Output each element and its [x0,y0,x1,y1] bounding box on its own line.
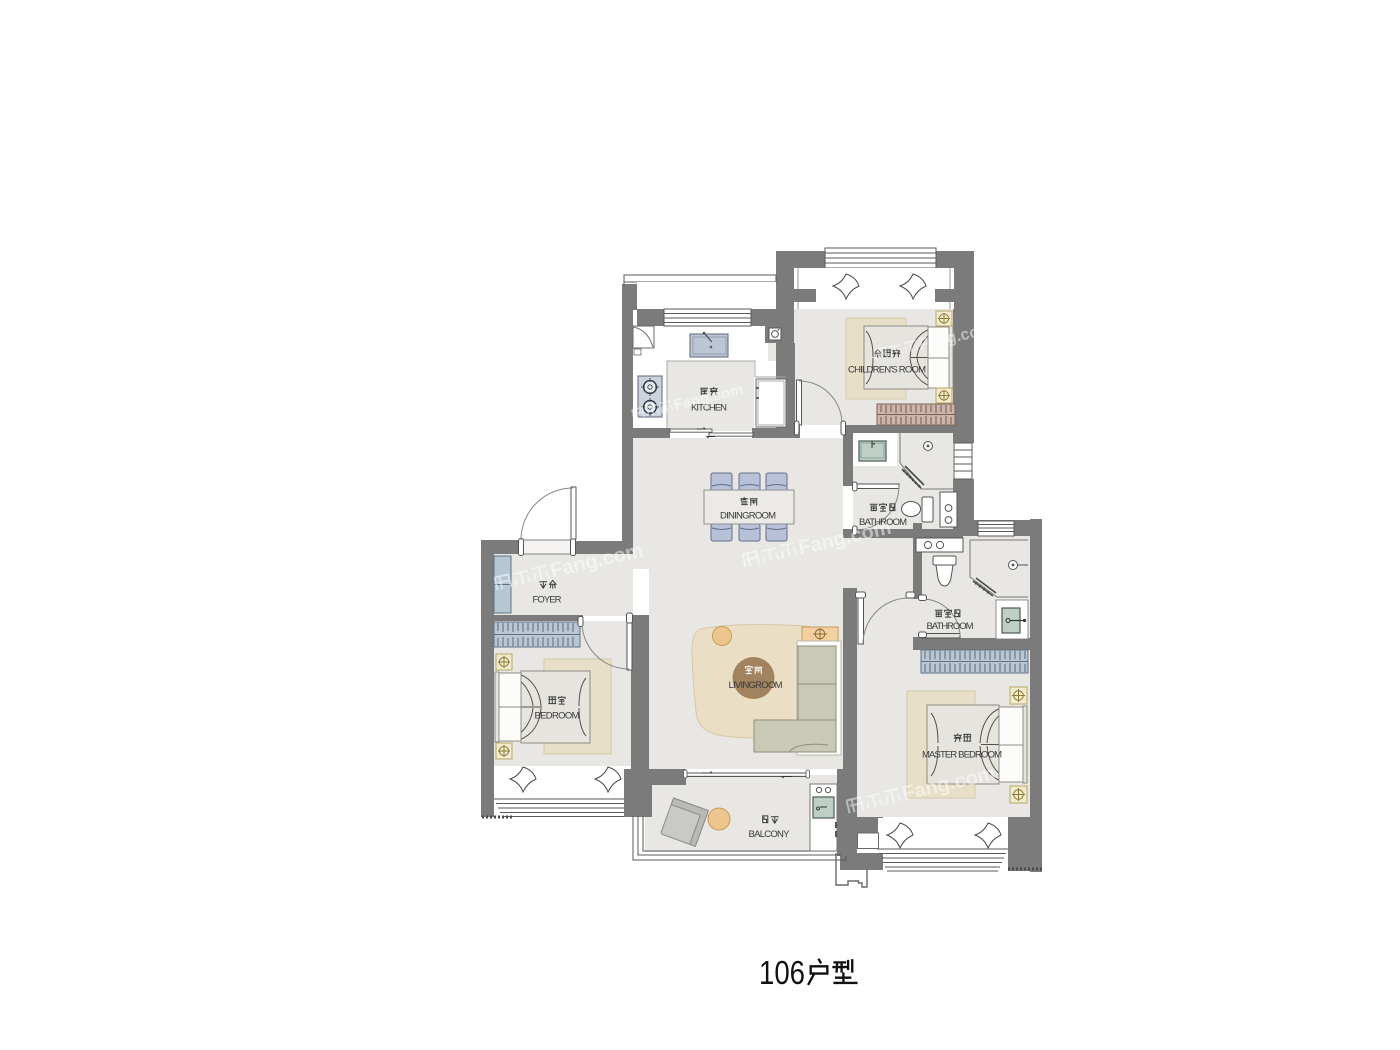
svg-text:MASTER BEDROOM: MASTER BEDROOM [922,750,1002,761]
svg-text:BALCONY: BALCONY [749,829,791,840]
svg-text:DININGROOM: DININGROOM [720,511,776,522]
svg-text:106: 106 [759,954,805,991]
svg-text:FOYER: FOYER [533,595,562,606]
svg-text:CHILDREN'S ROOM: CHILDREN'S ROOM [848,365,926,376]
svg-text:BEDROOM: BEDROOM [535,711,580,722]
svg-text:BATHROOM: BATHROOM [927,621,974,632]
svg-text:LIVINGROOM: LIVINGROOM [729,680,783,691]
